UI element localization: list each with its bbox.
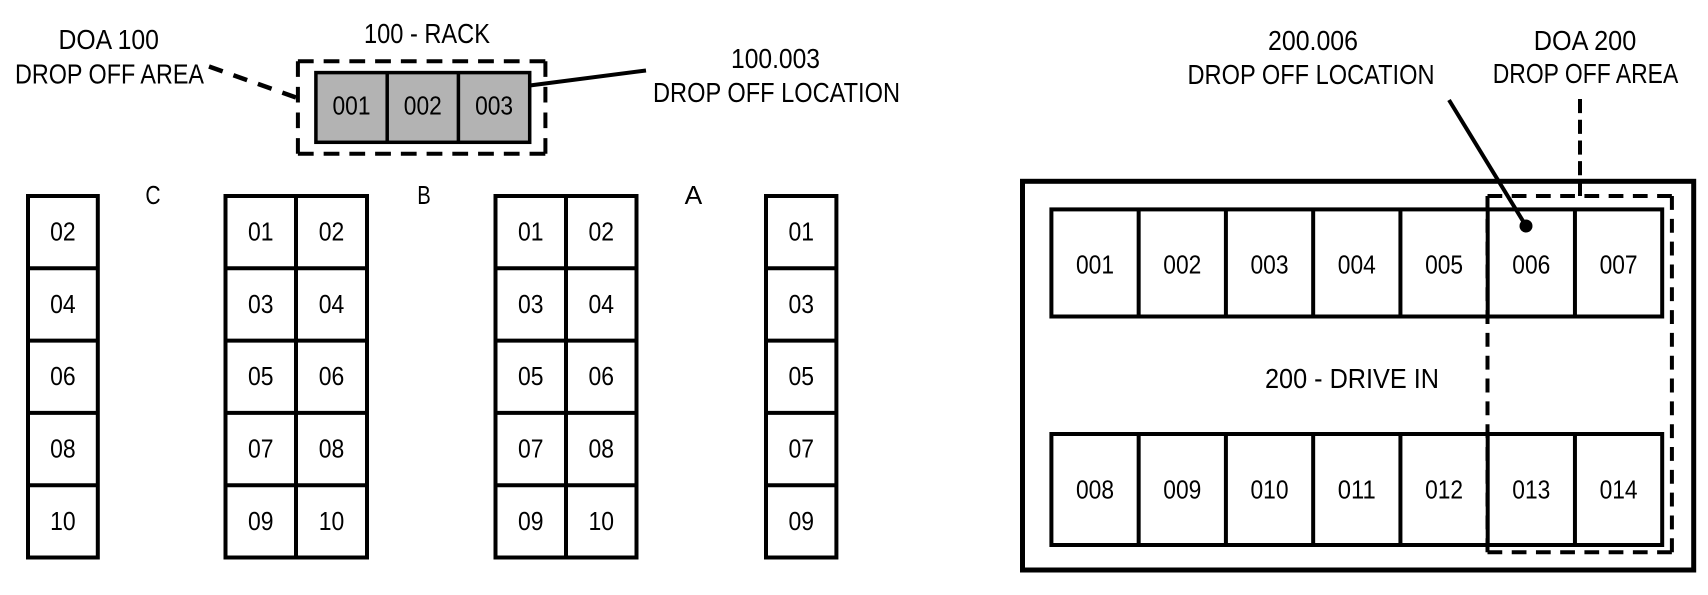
svg-text:01: 01	[248, 217, 274, 247]
svg-text:001: 001	[1076, 250, 1114, 280]
svg-text:04: 04	[319, 289, 345, 319]
svg-text:06: 06	[50, 361, 76, 391]
svg-text:10: 10	[319, 506, 345, 536]
svg-text:004: 004	[1338, 250, 1376, 280]
svg-text:09: 09	[248, 506, 274, 536]
svg-text:002: 002	[404, 91, 442, 121]
svg-text:02: 02	[319, 217, 345, 247]
svg-text:C: C	[145, 180, 160, 210]
svg-text:010: 010	[1251, 475, 1289, 505]
svg-text:014: 014	[1600, 475, 1638, 505]
svg-text:03: 03	[248, 289, 274, 319]
svg-text:008: 008	[1076, 475, 1114, 505]
svg-text:200 - DRIVE IN: 200 - DRIVE IN	[1265, 363, 1439, 394]
svg-text:005: 005	[1425, 250, 1463, 280]
svg-text:10: 10	[588, 506, 614, 536]
svg-text:06: 06	[319, 361, 345, 391]
svg-text:03: 03	[788, 289, 814, 319]
svg-text:006: 006	[1512, 250, 1550, 280]
svg-text:07: 07	[518, 434, 544, 464]
svg-text:DOA 200: DOA 200	[1534, 25, 1637, 56]
svg-text:10: 10	[50, 506, 76, 536]
svg-text:02: 02	[588, 217, 614, 247]
svg-text:08: 08	[50, 434, 76, 464]
svg-text:003: 003	[1251, 250, 1289, 280]
svg-text:100 - RACK: 100 - RACK	[364, 18, 490, 49]
svg-text:01: 01	[788, 217, 814, 247]
svg-text:07: 07	[248, 434, 274, 464]
svg-text:06: 06	[588, 361, 614, 391]
svg-text:08: 08	[588, 434, 614, 464]
svg-text:DROP OFF AREA: DROP OFF AREA	[1493, 58, 1679, 89]
svg-text:01: 01	[518, 217, 544, 247]
svg-text:009: 009	[1163, 475, 1201, 505]
svg-text:05: 05	[518, 361, 544, 391]
svg-text:003: 003	[475, 91, 513, 121]
svg-text:001: 001	[333, 91, 371, 121]
svg-text:002: 002	[1163, 250, 1201, 280]
svg-text:200.006: 200.006	[1268, 25, 1358, 56]
svg-text:011: 011	[1338, 475, 1376, 505]
svg-text:03: 03	[518, 289, 544, 319]
svg-text:DROP OFF LOCATION: DROP OFF LOCATION	[653, 77, 900, 108]
svg-text:04: 04	[50, 289, 76, 319]
svg-text:07: 07	[788, 434, 814, 464]
svg-text:A: A	[685, 180, 703, 210]
svg-text:013: 013	[1512, 475, 1550, 505]
svg-text:08: 08	[319, 434, 345, 464]
svg-text:04: 04	[588, 289, 614, 319]
svg-text:100.003: 100.003	[731, 43, 820, 74]
svg-text:05: 05	[248, 361, 274, 391]
svg-text:B: B	[417, 180, 431, 210]
svg-text:09: 09	[788, 506, 814, 536]
svg-text:DROP OFF LOCATION: DROP OFF LOCATION	[1188, 59, 1435, 90]
svg-text:05: 05	[788, 361, 814, 391]
svg-text:09: 09	[518, 506, 544, 536]
svg-text:02: 02	[50, 217, 76, 247]
svg-text:DROP OFF AREA: DROP OFF AREA	[15, 59, 204, 90]
svg-text:DOA 100: DOA 100	[58, 24, 159, 55]
svg-text:007: 007	[1600, 250, 1638, 280]
svg-text:012: 012	[1425, 475, 1463, 505]
